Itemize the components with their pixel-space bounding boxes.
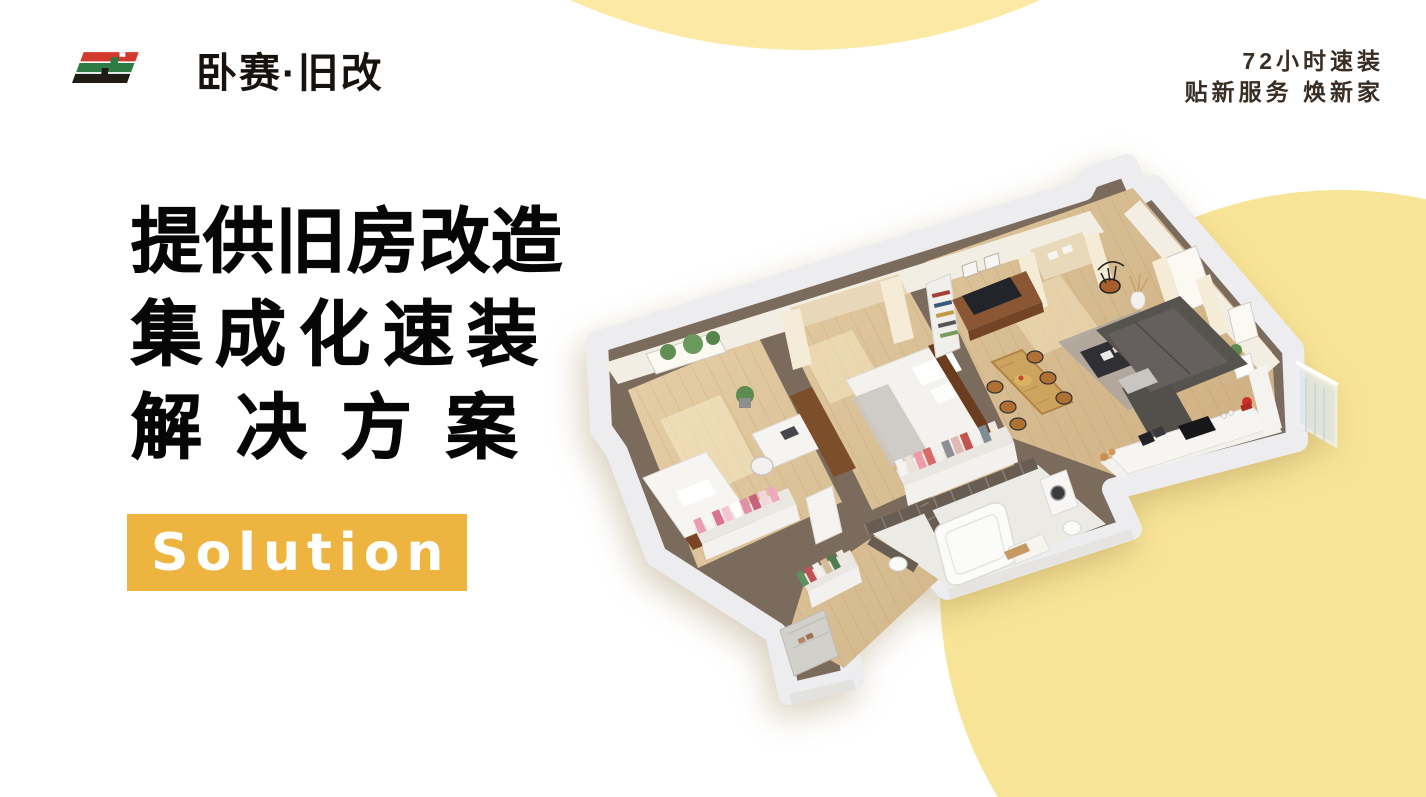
tagline-line-2: 贴新服务 焕新家 [1185,77,1384,108]
solution-badge-label: Solution [151,523,450,583]
brand-logo-text: 卧赛·旧改 [196,48,384,98]
tagline: 72小时速装 贴新服务 焕新家 [1185,46,1384,108]
poster-page: 卧赛·旧改 72小时速装 贴新服务 焕新家 提供旧房改造 集成化速装 解决方案 … [0,0,1426,797]
brand-logo: 卧赛·旧改 [70,48,384,98]
brand-logo-mark [70,48,174,98]
headline-line-2: 集成化速装 [131,289,563,382]
headline-line-1: 提供旧房改造 [131,196,563,289]
headline: 提供旧房改造 集成化速装 解决方案 [131,196,563,475]
solution-badge: Solution [127,514,467,591]
headline-line-3: 解决方案 [131,382,563,475]
tagline-line-1: 72小时速装 [1185,46,1384,77]
